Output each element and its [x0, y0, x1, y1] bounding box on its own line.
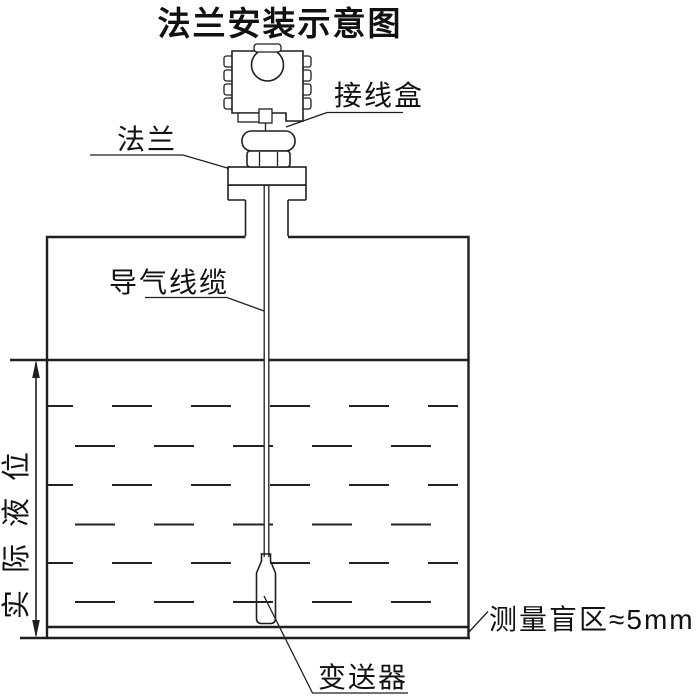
blind-zone-label: 测量盲区≈5mm	[489, 604, 695, 635]
connector-block	[259, 109, 272, 123]
dome-cap	[254, 44, 281, 52]
flange-leader	[90, 155, 229, 169]
air-cable	[264, 185, 270, 557]
hex-nut-body	[247, 151, 290, 167]
hex-nut	[247, 151, 290, 167]
liquid-dashes	[48, 406, 458, 602]
diagram-canvas: 法兰安装示意图 接线盒 法兰 导气线缆 实际液位 变送器 测量盲区≈5mm	[0, 0, 700, 700]
tank-outline	[10, 236, 470, 638]
page-title: 法兰安装示意图	[158, 5, 403, 42]
flange-plate	[228, 167, 306, 185]
air-cable-label: 导气线缆	[109, 267, 229, 298]
arrow-up-icon	[32, 360, 40, 378]
diagram-page: 法兰安装示意图 接线盒 法兰 导气线缆 实际液位 变送器 测量盲区≈5mm	[0, 0, 700, 700]
level-dimension	[32, 360, 40, 638]
transmitter-head	[224, 44, 311, 167]
arrow-down-icon	[32, 620, 40, 638]
flange-label: 法兰	[117, 124, 177, 155]
display-dome	[252, 49, 284, 81]
junction-box-label: 接线盒	[334, 80, 424, 111]
coupling-capsule	[242, 131, 295, 151]
transmitter-label: 变送器	[318, 662, 408, 693]
air-cable-leader	[145, 298, 264, 312]
actual-level-label: 实际液位	[0, 435, 33, 619]
